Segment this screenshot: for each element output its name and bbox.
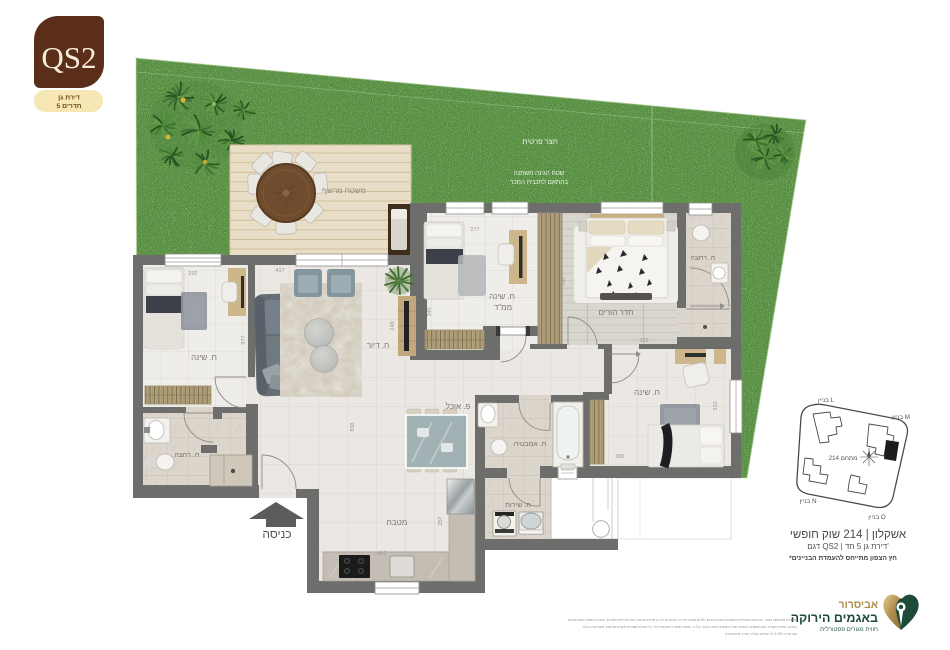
svg-text:מתחם 214: מתחם 214 bbox=[829, 455, 858, 462]
svg-text:אשקלון | 214 שוק חופשי: אשקלון | 214 שוק חופשי bbox=[790, 528, 907, 541]
svg-text:בניין N: בניין N bbox=[799, 498, 816, 505]
svg-text:בניין M: בניין M bbox=[892, 414, 910, 421]
svg-text:*חץ הצפון מתייחס להעמדת הבניינ: *חץ הצפון מתייחס להעמדת הבניינים bbox=[789, 554, 897, 562]
svg-text:באגמים הירוקה: באגמים הירוקה bbox=[791, 611, 878, 625]
svg-text:369: 369 bbox=[615, 454, 624, 460]
svg-text:אביסרור: אביסרור bbox=[839, 599, 878, 611]
svg-text:ממ"ד: ממ"ד bbox=[494, 303, 512, 312]
svg-text:שטח הגינה משתנה: שטח הגינה משתנה bbox=[514, 170, 565, 177]
svg-text:ח. שירות: ח. שירות bbox=[505, 502, 531, 509]
svg-text:קנה מידה: 1:100 כל המידות בס"מ: קנה מידה: 1:100 כל המידות בס"מ. תאריך עד… bbox=[725, 632, 797, 636]
svg-text:התוכנית להמחשה בלבד. הרהיטים ו: התוכנית להמחשה בלבד. הרהיטים והאביזרים ה… bbox=[568, 618, 797, 622]
svg-text:חדר הורים: חדר הורים bbox=[599, 308, 634, 317]
svg-text:בהתאם לתכנית המכר: בהתאם לתכנית המכר bbox=[510, 178, 568, 186]
svg-text:5 חדרים: 5 חדרים bbox=[56, 103, 81, 110]
svg-text:ח. שינה: ח. שינה bbox=[489, 292, 515, 301]
svg-text:292: 292 bbox=[188, 271, 197, 277]
svg-text:838: 838 bbox=[350, 422, 356, 431]
svg-text:ח. רחצה: ח. רחצה bbox=[691, 255, 716, 262]
svg-text:בניין O: בניין O bbox=[868, 514, 886, 521]
svg-text:ח. שינה: ח. שינה bbox=[191, 353, 217, 362]
svg-text:412: 412 bbox=[377, 551, 386, 557]
svg-text:חווית מגורים פסטורלית: חווית מגורים פסטורלית bbox=[820, 625, 878, 633]
svg-text:בניין L: בניין L bbox=[818, 397, 835, 404]
svg-text:377: 377 bbox=[241, 335, 247, 344]
svg-text:ח. אמבטיה: ח. אמבטיה bbox=[514, 441, 547, 448]
svg-text:כניסה: כניסה bbox=[262, 527, 291, 541]
svg-text:248: 248 bbox=[390, 321, 396, 330]
svg-text:QS2: QS2 bbox=[41, 40, 96, 75]
svg-text:352: 352 bbox=[639, 338, 648, 344]
svg-text:277: 277 bbox=[470, 227, 479, 233]
svg-text:ח. רחצה: ח. רחצה bbox=[175, 452, 200, 459]
svg-text:בתכנון. המידע המחייב הוא המפור: בתכנון. המידע המחייב הוא המפורט בהסכם המ… bbox=[583, 625, 797, 629]
svg-text:פ. אוכל: פ. אוכל bbox=[446, 402, 471, 411]
svg-text:משטח מרוצף: משטח מרוצף bbox=[322, 186, 366, 195]
svg-text:257: 257 bbox=[438, 516, 444, 525]
svg-text:דגם QS2 | דירת גן 5 חד': דגם QS2 | דירת גן 5 חד' bbox=[807, 542, 889, 551]
svg-text:ח. דיור: ח. דיור bbox=[367, 341, 390, 350]
svg-text:337: 337 bbox=[561, 276, 567, 285]
svg-text:345: 345 bbox=[427, 307, 433, 316]
svg-text:דירת גן: דירת גן bbox=[58, 95, 80, 102]
svg-text:310: 310 bbox=[713, 401, 719, 410]
svg-text:417: 417 bbox=[275, 268, 284, 274]
svg-text:חצר פרטית: חצר פרטית bbox=[522, 137, 558, 146]
svg-text:מטבח: מטבח bbox=[387, 518, 408, 527]
svg-text:ח. שינה: ח. שינה bbox=[634, 388, 660, 397]
